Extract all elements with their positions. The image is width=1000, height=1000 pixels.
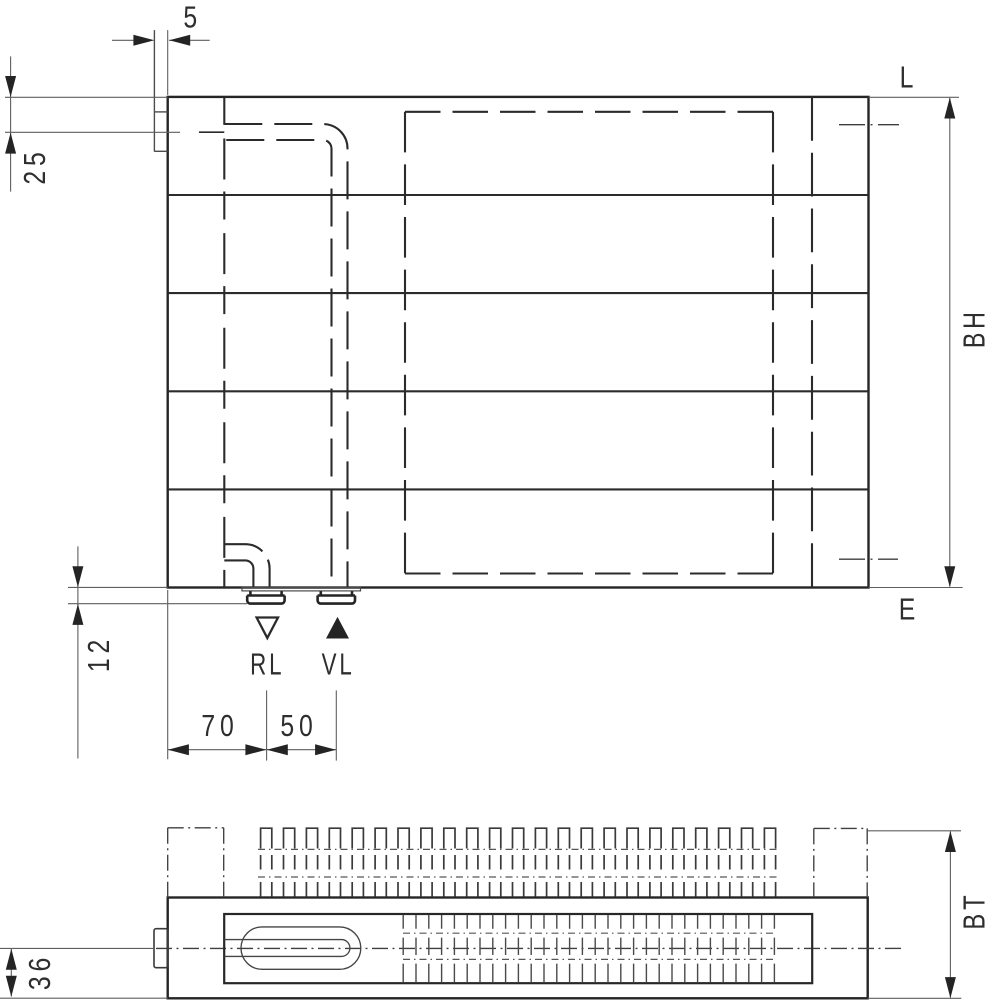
svg-text:BH: BH xyxy=(956,308,991,348)
svg-text:25: 25 xyxy=(17,147,51,184)
svg-text:E: E xyxy=(899,592,916,626)
svg-text:L: L xyxy=(900,60,914,94)
svg-text:5: 5 xyxy=(183,0,197,34)
svg-text:BT: BT xyxy=(956,891,991,929)
svg-text:12: 12 xyxy=(81,635,115,672)
svg-text:50: 50 xyxy=(280,708,317,742)
svg-text:VL: VL xyxy=(322,647,355,681)
svg-text:70: 70 xyxy=(201,708,238,742)
svg-text:36: 36 xyxy=(22,953,56,990)
svg-text:RL: RL xyxy=(250,647,284,681)
